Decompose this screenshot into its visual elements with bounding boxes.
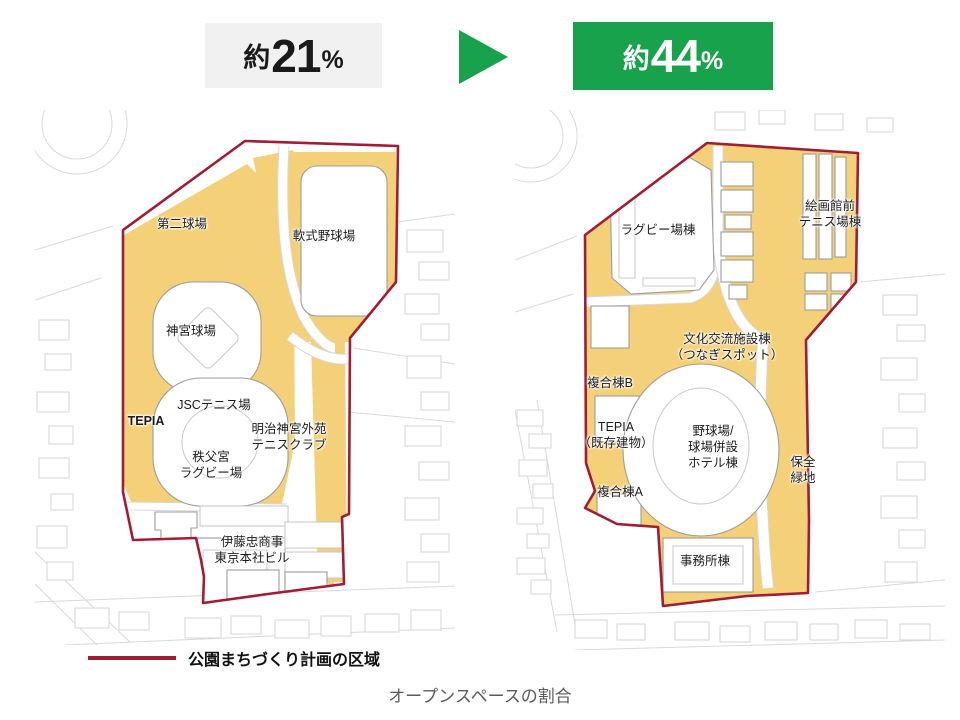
map-after-interior [585,143,858,606]
map-before-interior [123,141,398,616]
after-prefix: 約 [623,37,650,76]
before-prefix: 約 [243,36,270,75]
transition-arrow-icon [459,30,508,84]
before-unit: % [321,46,343,75]
map-after: ラグビー場棟 絵画館前 テニス場棟 文化交流施設棟 （つなぎスポット） 複合棟B… [515,110,945,650]
map-after-graphic [515,110,945,650]
legend-boundary-line-swatch [88,656,176,660]
after-unit: % [701,47,723,76]
map-before-graphic [35,110,455,645]
figure-caption: オープンスペースの割合 [0,682,960,707]
after-value: 44 [651,29,700,83]
map-before: 第二球場 軟式野球場 神宮球場 JSCテニス場 TEPIA 明治神宮外苑 テニス… [35,110,455,645]
slide-canvas: 約21% 約44% [0,0,960,720]
before-value: 21 [271,29,320,83]
before-percentage-badge: 約21% [205,23,382,88]
legend-label: 公園まちづくり計画の区域 [188,646,380,670]
legend: 公園まちづくり計画の区域 [88,646,380,670]
after-percentage-badge: 約44% [573,22,773,90]
